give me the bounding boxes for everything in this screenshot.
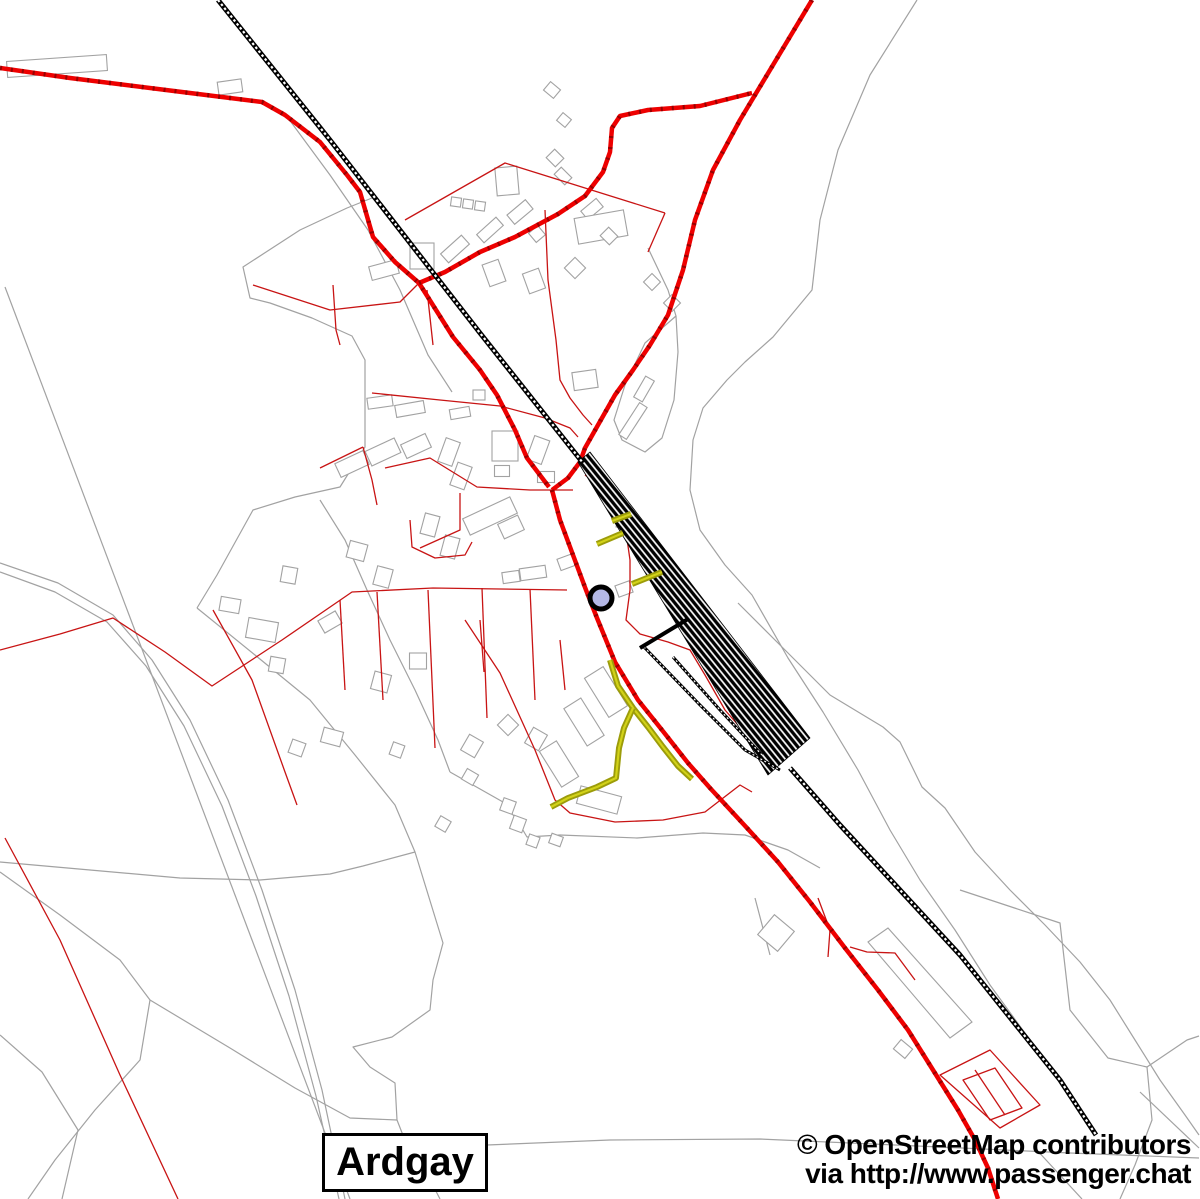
building-outline bbox=[574, 210, 628, 244]
place-label: Ardgay bbox=[336, 1140, 474, 1185]
building-outline bbox=[525, 727, 548, 751]
building-outline bbox=[634, 376, 655, 402]
building-outline bbox=[522, 268, 545, 294]
minor-red-lines-path bbox=[340, 600, 345, 690]
boundary-lines-path bbox=[960, 890, 1199, 1067]
building-outline bbox=[461, 734, 484, 758]
building-outline bbox=[644, 274, 661, 291]
boundary-lines-path bbox=[197, 198, 372, 608]
building-outline bbox=[450, 462, 472, 490]
building-outline bbox=[502, 570, 520, 583]
building-outline bbox=[420, 513, 440, 537]
building-outline bbox=[543, 82, 560, 99]
building-outline bbox=[572, 369, 598, 390]
station-platform bbox=[640, 619, 688, 648]
boundary-lines-path bbox=[450, 772, 820, 868]
building-outline bbox=[495, 166, 519, 196]
building-outline bbox=[539, 741, 578, 787]
building-outline bbox=[438, 438, 461, 467]
map-canvas bbox=[0, 0, 1200, 1199]
building-outline bbox=[245, 618, 278, 643]
building-outline bbox=[893, 1040, 912, 1059]
building-outline bbox=[758, 915, 795, 952]
building-outline bbox=[482, 259, 506, 286]
map-attribution: © OpenStreetMap contributors via http://… bbox=[797, 1130, 1191, 1188]
building-outline bbox=[554, 167, 572, 185]
building-outline bbox=[461, 769, 478, 786]
minor-red-lines-path bbox=[428, 590, 435, 748]
building-outline bbox=[546, 149, 564, 167]
minor-red-lines-path bbox=[560, 640, 565, 690]
building-outline bbox=[449, 406, 470, 419]
building-outline bbox=[288, 739, 306, 757]
building-outline bbox=[365, 438, 401, 466]
building-outline bbox=[280, 566, 298, 584]
building-outline bbox=[401, 433, 432, 458]
building-outline bbox=[868, 928, 972, 1038]
boundary-lines-path bbox=[197, 608, 443, 1199]
railway-tracks-path bbox=[790, 768, 1096, 1135]
building-outline bbox=[367, 395, 393, 409]
boundary-lines-path bbox=[0, 572, 339, 1199]
building-outline bbox=[435, 816, 451, 832]
major-roads-path bbox=[552, 0, 812, 490]
attribution-line-1: © OpenStreetMap contributors bbox=[797, 1130, 1191, 1159]
building-outline bbox=[373, 566, 393, 588]
minor-red-lines-path bbox=[405, 163, 665, 220]
station-platform-path bbox=[640, 619, 688, 648]
building-outline bbox=[474, 201, 485, 211]
major-roads-path bbox=[0, 68, 549, 487]
boundary-lines-path bbox=[0, 563, 345, 1199]
building-outline bbox=[500, 798, 517, 815]
building-outline bbox=[320, 727, 343, 747]
building-outline bbox=[219, 596, 241, 613]
major-roads-overlay bbox=[0, 68, 549, 487]
building-outline bbox=[395, 401, 426, 418]
footpaths-overlay bbox=[597, 533, 623, 544]
boundary-lines-path bbox=[150, 1000, 397, 1120]
map-viewport: Ardgay © OpenStreetMap contributors via … bbox=[0, 0, 1200, 1199]
minor-red-lines-path bbox=[5, 838, 178, 1199]
building-outline bbox=[335, 451, 369, 478]
building-outline bbox=[492, 431, 518, 461]
boundary-lines-path bbox=[738, 603, 1199, 1135]
railway-station-band bbox=[578, 452, 810, 775]
place-label-box: Ardgay bbox=[322, 1133, 488, 1192]
building-outline bbox=[497, 714, 518, 735]
minor-red-lines-path bbox=[530, 589, 535, 700]
building-outline bbox=[564, 257, 585, 278]
building-outline bbox=[389, 742, 405, 758]
building-outline bbox=[318, 611, 342, 633]
minor-red-lines-path bbox=[940, 1050, 1040, 1128]
building-outline bbox=[557, 113, 572, 128]
building-outline bbox=[462, 199, 473, 209]
railway-station-band-path bbox=[578, 452, 810, 775]
building-outline bbox=[268, 656, 285, 673]
boundary-lines-path bbox=[0, 872, 150, 1199]
building-outline bbox=[519, 565, 546, 581]
minor-red-lines-path bbox=[648, 213, 665, 252]
building-outline bbox=[346, 540, 368, 561]
building-outline bbox=[564, 698, 604, 746]
building-outline bbox=[495, 466, 510, 477]
attribution-line-2: via http://www.passenger.chat bbox=[797, 1159, 1191, 1188]
building-outline bbox=[477, 217, 504, 243]
boundary-lines-path bbox=[0, 1035, 78, 1199]
building-outline bbox=[217, 79, 243, 95]
building-outline bbox=[507, 200, 533, 225]
building-outline bbox=[509, 815, 526, 833]
building-outline bbox=[619, 403, 647, 440]
buildings bbox=[7, 55, 972, 1059]
building-outline bbox=[450, 197, 461, 207]
boundary-lines-path bbox=[0, 852, 415, 880]
minor-red-lines-path bbox=[333, 285, 340, 345]
building-outline bbox=[410, 653, 427, 669]
poi-node-marker bbox=[590, 587, 612, 609]
building-outline bbox=[473, 390, 485, 400]
major-roads-overlay bbox=[552, 0, 812, 490]
